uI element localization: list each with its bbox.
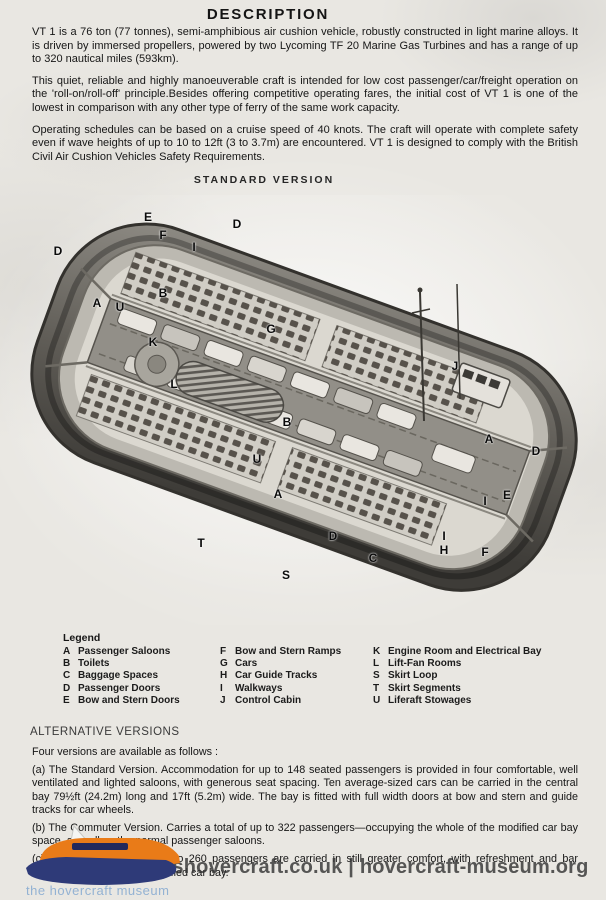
legend-item-S: SSkirt Loop bbox=[373, 670, 541, 682]
legend-item-H: HCar Guide Tracks bbox=[220, 670, 341, 682]
alternative-versions-heading: ALTERNATIVE VERSIONS bbox=[30, 726, 180, 738]
figure-label-D: D bbox=[532, 444, 541, 458]
legend-item-G: GCars bbox=[220, 658, 341, 670]
intro-paragraphs: VT 1 is a 76 ton (77 tonnes), semi-amphi… bbox=[32, 26, 578, 172]
figure-label-I: I bbox=[483, 494, 486, 508]
legend-key: S bbox=[373, 670, 388, 682]
legend-heading: Legend bbox=[63, 632, 100, 644]
legend-item-C: CBaggage Spaces bbox=[63, 670, 180, 682]
legend-label: Skirt Loop bbox=[388, 670, 437, 682]
figure-label-A: A bbox=[485, 432, 494, 446]
figure-label-E: E bbox=[144, 210, 152, 224]
legend-label: Cars bbox=[235, 658, 257, 670]
legend-key: T bbox=[373, 683, 388, 695]
figure-label-T: T bbox=[197, 536, 204, 550]
legend-item-E: EBow and Stern Doors bbox=[63, 695, 180, 707]
legend-label: Toilets bbox=[78, 658, 109, 670]
legend-item-A: APassenger Saloons bbox=[63, 646, 180, 658]
legend-item-U: ULiferaft Stowages bbox=[373, 695, 541, 707]
legend-key: L bbox=[373, 658, 388, 670]
page-title: DESCRIPTION bbox=[0, 6, 536, 23]
figure-label-G: G bbox=[266, 322, 275, 336]
legend-label: Baggage Spaces bbox=[78, 670, 158, 682]
alt-paragraph-a: (a) The Standard Version. Accommodation … bbox=[32, 764, 578, 817]
legend-key: C bbox=[63, 670, 78, 682]
legend-label: Skirt Segments bbox=[388, 683, 461, 695]
scanned-brochure-page: { "title": "DESCRIPTION", "intro_paragra… bbox=[0, 0, 606, 900]
figure-label-K: K bbox=[149, 335, 158, 349]
alt-intro: Four versions are available as follows : bbox=[32, 746, 578, 759]
legend-key: B bbox=[63, 658, 78, 670]
legend-item-B: BToilets bbox=[63, 658, 180, 670]
legend-key: K bbox=[373, 646, 388, 658]
legend-column-3: KEngine Room and Electrical BayLLift-Fan… bbox=[373, 646, 541, 707]
cutaway-figure: EFDDIBAUGKLJBUADCTSADEIIHF bbox=[0, 195, 606, 625]
legend-label: Bow and Stern Ramps bbox=[235, 646, 341, 658]
legend-label: Passenger Doors bbox=[78, 683, 160, 695]
figure-label-B: B bbox=[283, 415, 292, 429]
legend-key: F bbox=[220, 646, 235, 658]
legend-item-K: KEngine Room and Electrical Bay bbox=[373, 646, 541, 658]
figure-label-U: U bbox=[116, 300, 125, 314]
figure-label-F: F bbox=[159, 228, 166, 242]
legend-key: D bbox=[63, 683, 78, 695]
legend-key: H bbox=[220, 670, 235, 682]
figure-label-U: U bbox=[253, 452, 262, 466]
figure-label-C: C bbox=[369, 551, 378, 565]
legend-label: Engine Room and Electrical Bay bbox=[388, 646, 541, 658]
legend-item-D: DPassenger Doors bbox=[63, 683, 180, 695]
figure-label-A: A bbox=[93, 296, 102, 310]
legend-key: J bbox=[220, 695, 235, 707]
legend-key: U bbox=[373, 695, 388, 707]
legend-label: Liferaft Stowages bbox=[388, 695, 471, 707]
legend-item-I: IWalkways bbox=[220, 683, 341, 695]
figure-label-D: D bbox=[329, 529, 338, 543]
figure-labels: EFDDIBAUGKLJBUADCTSADEIIHF bbox=[0, 195, 606, 625]
legend-item-J: JControl Cabin bbox=[220, 695, 341, 707]
figure-label-I: I bbox=[442, 529, 445, 543]
legend-item-L: LLift-Fan Rooms bbox=[373, 658, 541, 670]
legend-key: G bbox=[220, 658, 235, 670]
intro-paragraph-2: This quiet, reliable and highly manoeuve… bbox=[32, 75, 578, 116]
logo-window-band bbox=[72, 843, 128, 850]
legend: Legend APassenger SaloonsBToiletsCBaggag… bbox=[0, 632, 606, 712]
figure-label-I: I bbox=[192, 240, 195, 254]
legend-label: Control Cabin bbox=[235, 695, 301, 707]
figure-label-B: B bbox=[159, 286, 168, 300]
figure-label-J: J bbox=[452, 359, 459, 373]
legend-label: Passenger Saloons bbox=[78, 646, 170, 658]
legend-key: A bbox=[63, 646, 78, 658]
legend-column-2: FBow and Stern RampsGCarsHCar Guide Trac… bbox=[220, 646, 341, 707]
figure-label-F: F bbox=[481, 545, 488, 559]
figure-heading: STANDARD VERSION bbox=[0, 174, 528, 186]
legend-key: I bbox=[220, 683, 235, 695]
legend-column-1: APassenger SaloonsBToiletsCBaggage Space… bbox=[63, 646, 180, 707]
logo-caption: the hovercraft museum bbox=[26, 883, 169, 898]
legend-key: E bbox=[63, 695, 78, 707]
figure-label-L: L bbox=[170, 377, 177, 391]
hovercraft-museum-logo bbox=[14, 824, 199, 890]
legend-label: Car Guide Tracks bbox=[235, 670, 317, 682]
logo-skirt bbox=[26, 857, 176, 885]
figure-label-S: S bbox=[282, 568, 290, 582]
intro-paragraph-3: Operating schedules can be based on a cr… bbox=[32, 124, 578, 165]
figure-label-H: H bbox=[440, 543, 449, 557]
figure-label-D: D bbox=[233, 217, 242, 231]
legend-label: Lift-Fan Rooms bbox=[388, 658, 461, 670]
legend-item-F: FBow and Stern Ramps bbox=[220, 646, 341, 658]
intro-paragraph-1: VT 1 is a 76 ton (77 tonnes), semi-amphi… bbox=[32, 26, 578, 67]
legend-label: Bow and Stern Doors bbox=[78, 695, 180, 707]
legend-item-T: TSkirt Segments bbox=[373, 683, 541, 695]
figure-label-E: E bbox=[503, 488, 511, 502]
figure-label-D: D bbox=[54, 244, 63, 258]
figure-label-A: A bbox=[274, 487, 283, 501]
legend-label: Walkways bbox=[235, 683, 282, 695]
